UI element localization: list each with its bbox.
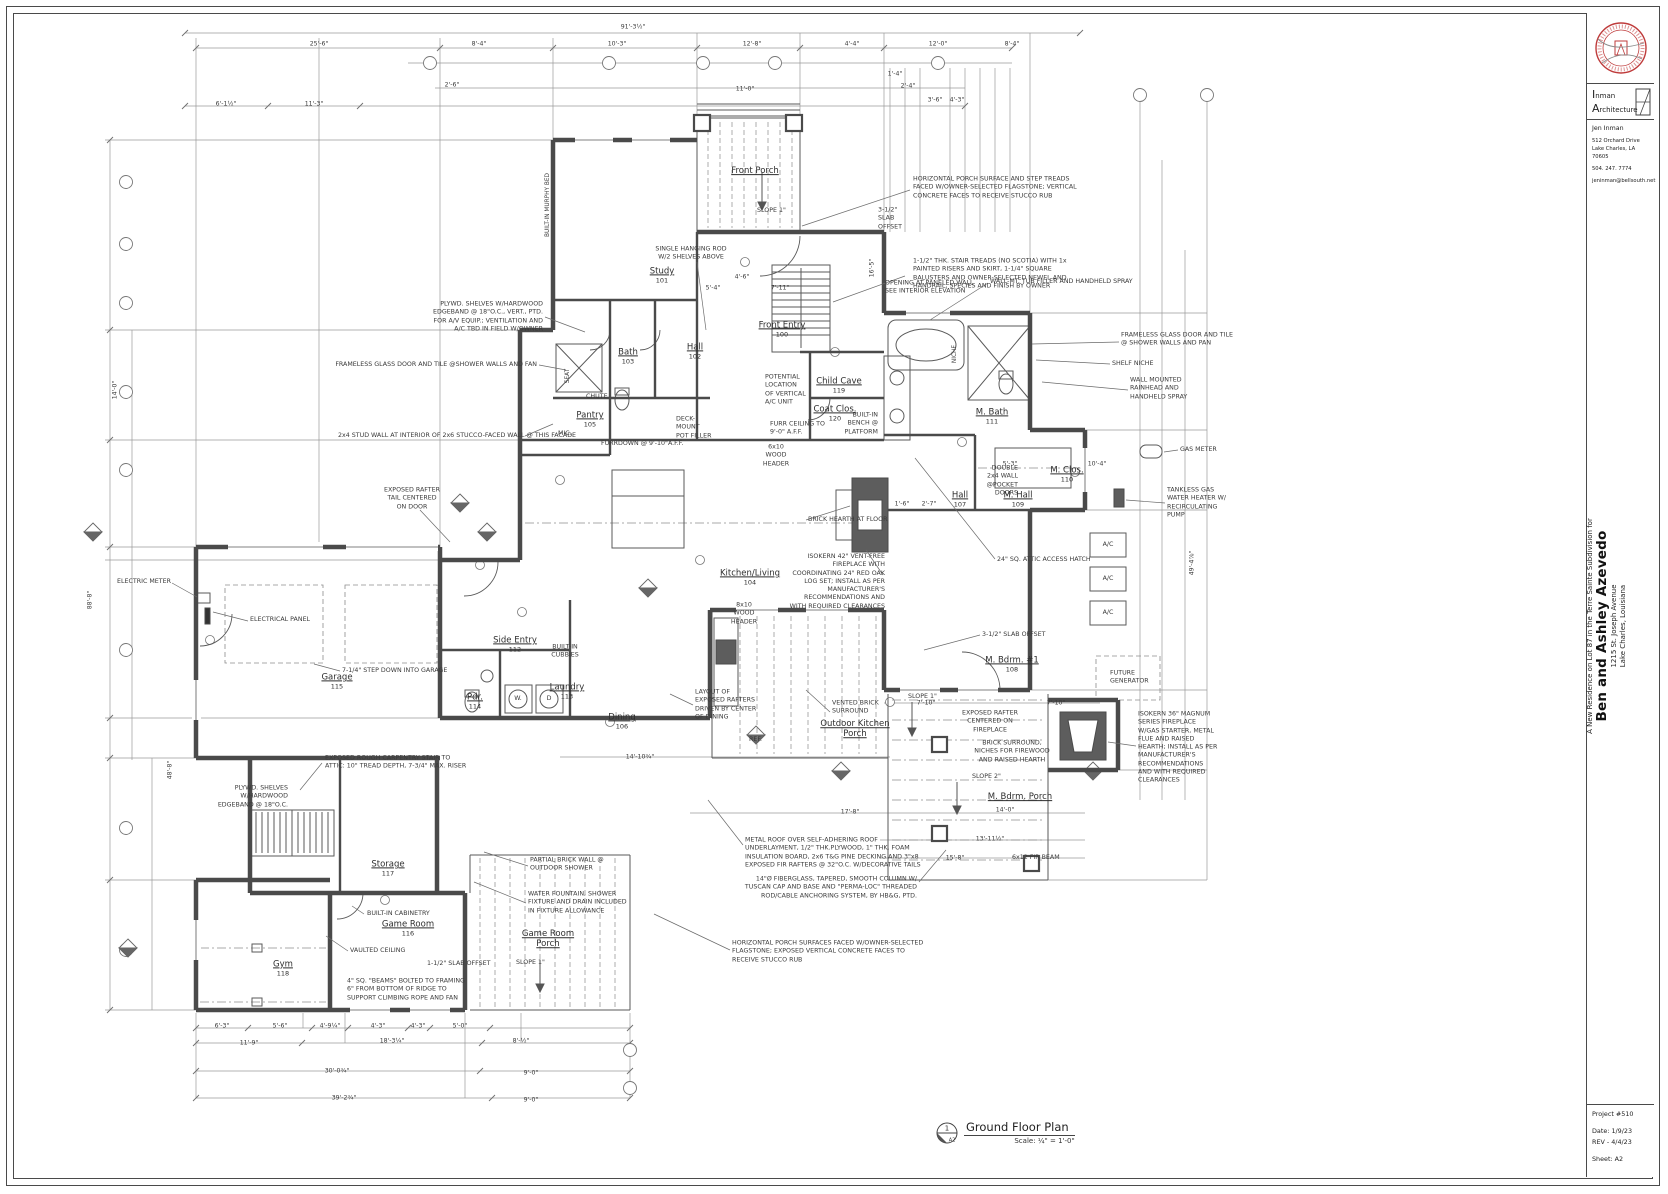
firm-phone: 504. 247. 7774 xyxy=(1592,166,1650,174)
architect-seal xyxy=(1587,13,1654,84)
architect-name: Jen Inman xyxy=(1592,124,1650,133)
project-info-block: Project #510 Date: 1/9/23 REV - 4/4/23 S… xyxy=(1587,1104,1654,1177)
porch-rafter-lines xyxy=(480,122,876,1008)
drawing-tag-sheet: A2 xyxy=(949,1138,956,1144)
thin-lines xyxy=(197,104,1162,1010)
dimension-ticks xyxy=(107,30,1083,1101)
firm-address-line1: 512 Orchard Drive xyxy=(1592,138,1650,146)
leader-lines xyxy=(172,190,1178,951)
drawing-tag-icon: 1 A2 xyxy=(934,1120,960,1146)
dimension-lines xyxy=(105,30,1207,1101)
door-swings xyxy=(200,236,1000,919)
seal-icon xyxy=(1592,19,1650,77)
grid-bubbles xyxy=(120,57,1214,1095)
firm-logo: Inman Architecture xyxy=(1587,84,1654,120)
firm-address-line2: Lake Charles, LA 70605 xyxy=(1592,146,1650,162)
hidden-lines xyxy=(225,585,1160,700)
interior-walls xyxy=(340,232,1030,893)
contact-block: Jen Inman 512 Orchard Drive Lake Charles… xyxy=(1587,120,1654,185)
floor-plan-drawing xyxy=(0,0,1668,1194)
drawing-scale: Scale: ¼" = 1'-0" xyxy=(964,1136,1075,1145)
project-date: Date: 1/9/23 xyxy=(1592,1127,1654,1136)
detail-markers xyxy=(84,494,1102,957)
drawing-tag-number: 1 xyxy=(945,1125,949,1133)
drawing-title-text: Ground Floor Plan xyxy=(964,1120,1075,1136)
plan-sheet: Front PorchFront Entry100Study101Hall102… xyxy=(0,0,1668,1194)
firm-email: jeninman@bellsouth.net xyxy=(1592,178,1650,186)
title-block: Inman Architecture Jen Inman 512 Orchard… xyxy=(1586,13,1654,1177)
firm-logo-mark xyxy=(1635,88,1651,116)
sheet-number: Sheet: A2 xyxy=(1592,1155,1654,1164)
project-number: Project #510 xyxy=(1592,1110,1654,1119)
project-revision: REV - 4/4/23 xyxy=(1592,1138,1654,1147)
door-tags xyxy=(206,258,1080,905)
drawing-title: 1 A2 Ground Floor Plan Scale: ¼" = 1'-0" xyxy=(934,1120,1075,1146)
